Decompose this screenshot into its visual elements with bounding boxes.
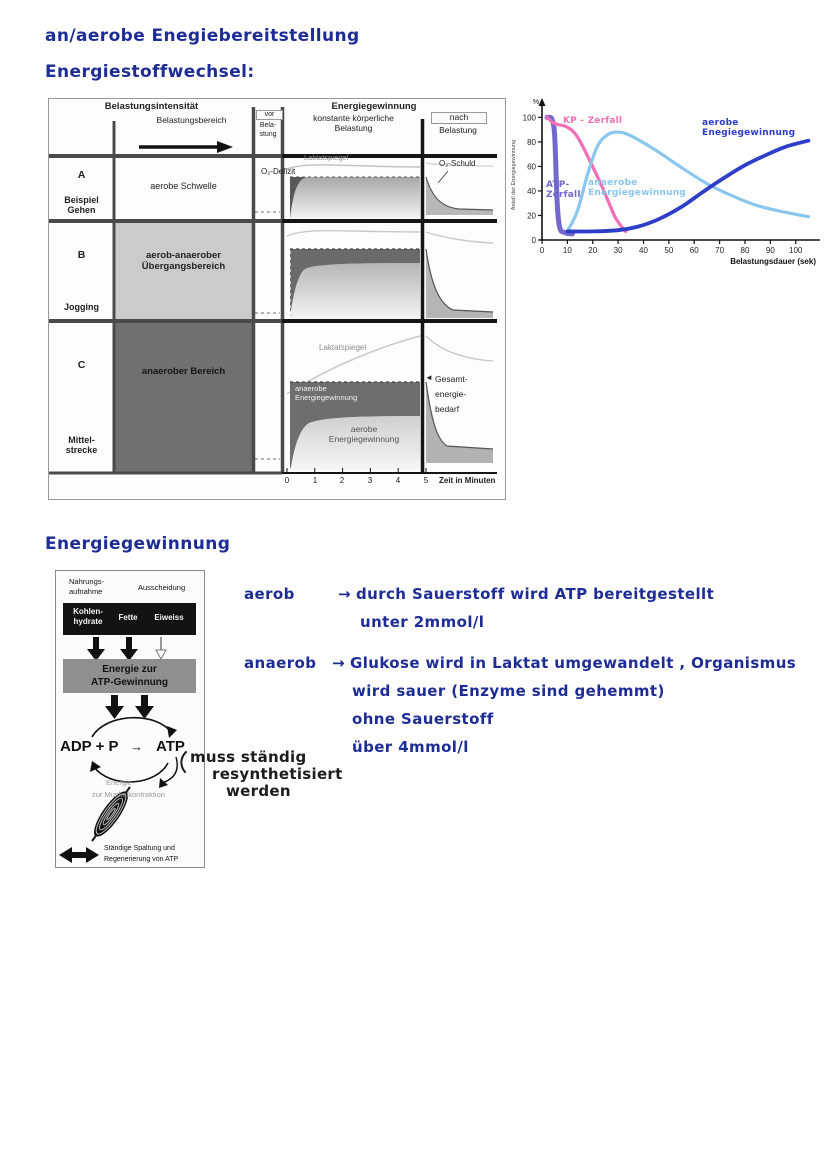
aerobe-band-label: aerobe Energiegewinnung: [309, 425, 419, 445]
y-tick-label: 100: [523, 113, 537, 122]
time-tick-2: 2: [338, 476, 346, 485]
col-vor-line3: stung: [253, 131, 283, 139]
y-tick-label: 40: [527, 187, 536, 196]
anaerob-term: anaerob: [244, 649, 316, 677]
x-tick-label: 100: [789, 246, 803, 255]
y-tick-label: 0: [532, 236, 537, 245]
series-atp-zerfall: [547, 117, 572, 234]
x-tick-label: 60: [690, 246, 699, 255]
col-nach-line2: Belastung: [427, 126, 489, 136]
x-axis-title: Belastungsdauer (sek): [730, 257, 816, 266]
time-tick-3: 3: [366, 476, 374, 485]
energie-atp-gewinnung-box: Energie zur ATP-Gewinnung: [63, 659, 196, 693]
x-tick-label: 50: [664, 246, 673, 255]
resynth-line2: resynthetisiert: [212, 765, 343, 783]
energiegewinnung-figure: Belastungsintensität Energiegewinnung Be…: [48, 98, 506, 500]
x-tick-label: 80: [741, 246, 750, 255]
adp-p-label: ADP + P: [60, 737, 119, 757]
figure-graphics: [49, 99, 505, 499]
adp-to-atp-arrow: →: [130, 739, 143, 756]
row-b-example: Jogging: [49, 302, 114, 312]
x-tick-label: 0: [540, 246, 545, 255]
y-axis-arrow: [539, 98, 546, 106]
col-konstant: konstante körperliche Belastung: [287, 114, 420, 134]
resynth-line1: muss ständig: [190, 748, 307, 766]
row-a-example: Beispiel Gehen: [49, 195, 114, 216]
section-heading-energiestoffwechsel: Energiestoffwechsel:: [45, 62, 255, 82]
aerob-line1: durch Sauerstoff wird ATP bereitgestellt: [356, 580, 714, 608]
time-tick-1: 1: [311, 476, 319, 485]
aerob-term: aerob: [244, 580, 295, 608]
o2-defizit-label: O₂-Defizit: [261, 167, 295, 176]
nutrient-eiweiss: Eiweiss: [147, 613, 191, 623]
aerob-line2: unter 2mmol/l: [360, 608, 484, 636]
nutrient-fette: Fette: [113, 613, 143, 623]
row-c-zone: anaerober Bereich: [114, 367, 253, 378]
page-title: an/aerobe Enegiebereitstellung: [45, 26, 360, 46]
nutrients-bar: Kohlen- hydrate Fette Eiweiss: [63, 603, 196, 635]
laktatspiegel-label-a: Laktatspiegel: [304, 154, 348, 163]
muskelenergie-line1: Energie: [106, 778, 132, 788]
energie-atp-gewinnung-label: Energie zur ATP-Gewinnung: [63, 663, 196, 689]
figure-header-left: Belastungsintensität: [59, 102, 244, 113]
muskelenergie-line2: zur Muskelkontraktion: [92, 790, 165, 800]
zeit-axis-label: Zeit in Minuten: [439, 476, 495, 485]
x-tick-label: 90: [766, 246, 775, 255]
x-tick-label: 70: [715, 246, 724, 255]
anaerob-line2: wird sauer (Enzyme sind gehemmt): [352, 677, 665, 705]
nahrungsaufnahme-label: Nahrungs- aufnahme: [69, 577, 104, 597]
spaltung-regeneration-arrow: [59, 847, 99, 863]
y-unit-label: %: [533, 98, 540, 106]
anaerob-line4: über 4mmol/l: [352, 733, 469, 761]
y-tick-label: 20: [527, 211, 536, 220]
gesamtenergiebedarf-label: Gesamt- energie- bedarf: [435, 372, 468, 417]
row-a-zone: aerobe Schwelle: [114, 181, 253, 191]
time-tick-4: 4: [394, 476, 402, 485]
resynth-line3: werden: [226, 782, 291, 800]
spaltung-regeneration-label: Ständige Spaltung und Regenerierung von …: [104, 843, 200, 865]
row-b-letter: B: [49, 249, 114, 261]
col-belastungsbereich: Belastungsbereich: [134, 116, 249, 126]
energy-contribution-chart: Anteil der Energiegewinnung 020406080100…: [508, 96, 828, 274]
anaerobe-band-label: anaerobe Energiegewinnung: [295, 385, 357, 402]
section-heading-energiegewinnung: Energiegewinnung: [45, 534, 230, 554]
anaerob-line1: Glukose wird in Laktat umgewandelt , Org…: [350, 649, 796, 677]
row-a-letter: A: [49, 169, 114, 181]
notes-page: an/aerobe Enegiebereitstellung Energiest…: [0, 0, 828, 1171]
ausscheidung-label: Ausscheidung: [138, 583, 185, 593]
atp-cycle-diagram: Nahrungs- aufnahme Ausscheidung Kohlen- …: [55, 570, 205, 868]
row-c-example: Mittel- strecke: [49, 435, 114, 456]
curve-label: ATP- Zerfall: [546, 180, 581, 200]
y-tick-label: 60: [527, 162, 536, 171]
gesamt-arrow-icon: ◄: [425, 373, 433, 382]
nutrient-kohlenhydrate: Kohlen- hydrate: [68, 607, 108, 628]
row-b-zone: aerob-anaerober Übergangsbereich: [114, 251, 253, 273]
aerob-arrow: →: [338, 580, 351, 608]
o2-schuld-label: O₂-Schuld: [439, 159, 475, 168]
laktatspiegel-label-c: Laktatspiegel: [319, 343, 366, 352]
resynth-connector-stroke: [176, 750, 190, 774]
curve-label: aerobe Enegiegewinnung: [702, 118, 795, 138]
time-tick-0: 0: [283, 476, 291, 485]
anaerob-arrow: →: [332, 649, 345, 677]
col-vor-box: vor: [256, 110, 283, 120]
time-tick-5: 5: [422, 476, 430, 485]
col-nach-box: nach: [431, 112, 487, 124]
col-vor-line2: Bela-: [253, 122, 283, 130]
curve-label: KP - Zerfall: [563, 116, 622, 126]
x-tick-label: 30: [614, 246, 623, 255]
x-tick-label: 10: [563, 246, 572, 255]
anaerob-line3: ohne Sauerstoff: [352, 705, 494, 733]
row-c-letter: C: [49, 359, 114, 371]
x-tick-label: 40: [639, 246, 648, 255]
x-tick-label: 20: [588, 246, 597, 255]
y-tick-label: 80: [527, 138, 536, 147]
curve-label: anaerobe Energiegewinnung: [588, 178, 686, 198]
